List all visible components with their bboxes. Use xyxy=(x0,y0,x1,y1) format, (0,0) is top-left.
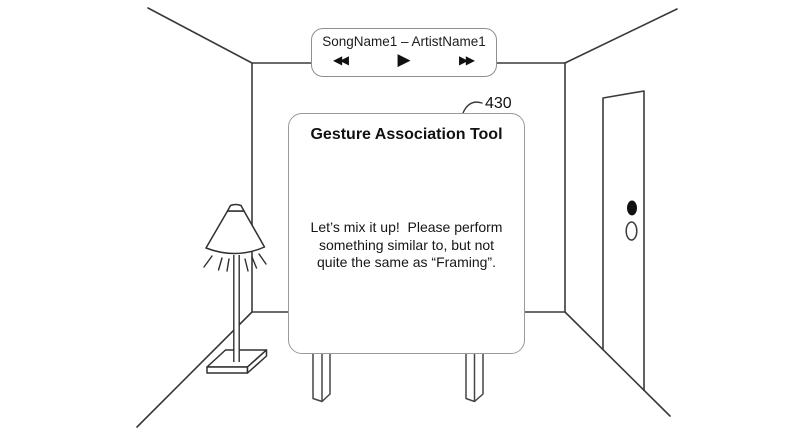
sign-legs xyxy=(313,354,483,402)
play-icon: ▶ xyxy=(397,52,410,69)
track-label: SongName1 – ArtistName1 xyxy=(312,34,496,49)
lamp-shade xyxy=(206,205,265,254)
sign-message: Let’s mix it up! Please perform somethin… xyxy=(289,219,524,272)
fast-forward-icon: ▶▶ xyxy=(459,54,475,66)
figure-label-leader-line xyxy=(463,102,482,113)
fast-forward-button[interactable]: ▶▶ xyxy=(459,54,475,66)
sign-title: Gesture Association Tool xyxy=(289,126,524,144)
lamp-shade-cone xyxy=(206,211,265,254)
patent-figure-scene: SongName1 – ArtistName1 ◀◀ ▶ ▶▶ Gesture … xyxy=(0,0,800,446)
lamp-base-front xyxy=(207,367,248,373)
doorknob xyxy=(627,201,637,216)
ceiling-edge-right xyxy=(565,9,677,63)
sign-message-line: Let’s mix it up! Please perform xyxy=(289,219,524,237)
door xyxy=(603,91,644,391)
music-player-widget: SongName1 – ArtistName1 ◀◀ ▶ ▶▶ xyxy=(311,28,497,77)
door-keyhole xyxy=(626,222,637,240)
door-outline xyxy=(603,91,644,391)
play-button[interactable]: ▶ xyxy=(397,52,410,69)
rewind-button[interactable]: ◀◀ xyxy=(333,54,349,66)
ceiling-edge-left xyxy=(148,8,252,63)
sign-message-line: quite the same as “Framing”. xyxy=(289,254,524,272)
sign-message-line: something similar to, but not xyxy=(289,237,524,255)
figure-reference-label: 430 xyxy=(485,95,512,113)
lamp-pole xyxy=(234,255,239,362)
floor-lamp xyxy=(204,205,267,373)
gesture-association-sign: Gesture Association Tool Let’s mix it up… xyxy=(288,113,525,354)
rewind-icon: ◀◀ xyxy=(333,54,349,66)
floor-edge-right xyxy=(565,312,670,416)
lamp-shade-cap xyxy=(228,205,245,211)
transport-controls: ◀◀ ▶ ▶▶ xyxy=(312,49,496,71)
lamp-pole-fill xyxy=(234,255,239,362)
